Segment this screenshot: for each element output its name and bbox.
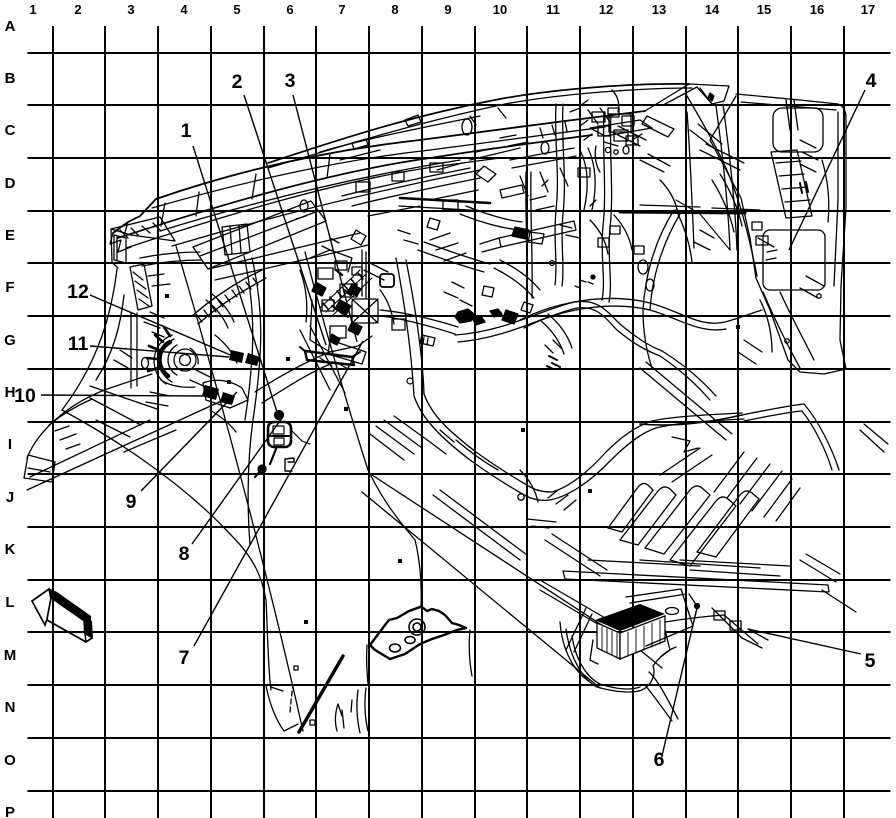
svg-text:P: P	[5, 804, 15, 818]
svg-text:11: 11	[546, 2, 560, 17]
svg-text:5: 5	[865, 650, 876, 672]
svg-text:3: 3	[285, 70, 296, 92]
svg-text:B: B	[5, 70, 16, 87]
svg-text:6: 6	[286, 2, 293, 17]
svg-text:I: I	[8, 436, 12, 453]
svg-text:D: D	[5, 175, 16, 192]
svg-text:8: 8	[179, 543, 190, 565]
svg-text:12: 12	[599, 2, 613, 17]
svg-text:2: 2	[232, 71, 243, 93]
svg-text:2: 2	[74, 2, 81, 17]
svg-text:4: 4	[180, 2, 188, 17]
svg-text:F: F	[5, 279, 14, 296]
svg-text:M: M	[4, 647, 17, 664]
svg-text:G: G	[4, 332, 16, 349]
svg-text:1: 1	[181, 120, 192, 142]
svg-text:16: 16	[810, 2, 824, 17]
svg-text:5: 5	[233, 2, 240, 17]
svg-text:13: 13	[652, 2, 666, 17]
svg-text:A: A	[5, 18, 16, 35]
svg-text:9: 9	[444, 2, 451, 17]
svg-text:15: 15	[757, 2, 771, 17]
svg-text:10: 10	[14, 385, 36, 407]
svg-text:14: 14	[705, 2, 720, 17]
svg-text:L: L	[5, 594, 14, 611]
svg-text:4: 4	[866, 70, 877, 92]
svg-text:7: 7	[179, 647, 190, 669]
svg-text:O: O	[4, 752, 16, 769]
svg-text:12: 12	[67, 281, 89, 303]
svg-text:7: 7	[338, 2, 345, 17]
svg-text:10: 10	[493, 2, 507, 17]
svg-text:C: C	[5, 122, 16, 139]
svg-text:3: 3	[127, 2, 134, 17]
svg-text:9: 9	[126, 491, 137, 513]
svg-text:K: K	[5, 541, 16, 558]
svg-text:N: N	[5, 699, 16, 716]
svg-text:E: E	[5, 227, 15, 244]
svg-text:11: 11	[68, 333, 89, 355]
svg-text:17: 17	[861, 2, 875, 17]
svg-text:8: 8	[391, 2, 398, 17]
svg-text:1: 1	[29, 2, 36, 17]
svg-text:J: J	[6, 489, 14, 506]
